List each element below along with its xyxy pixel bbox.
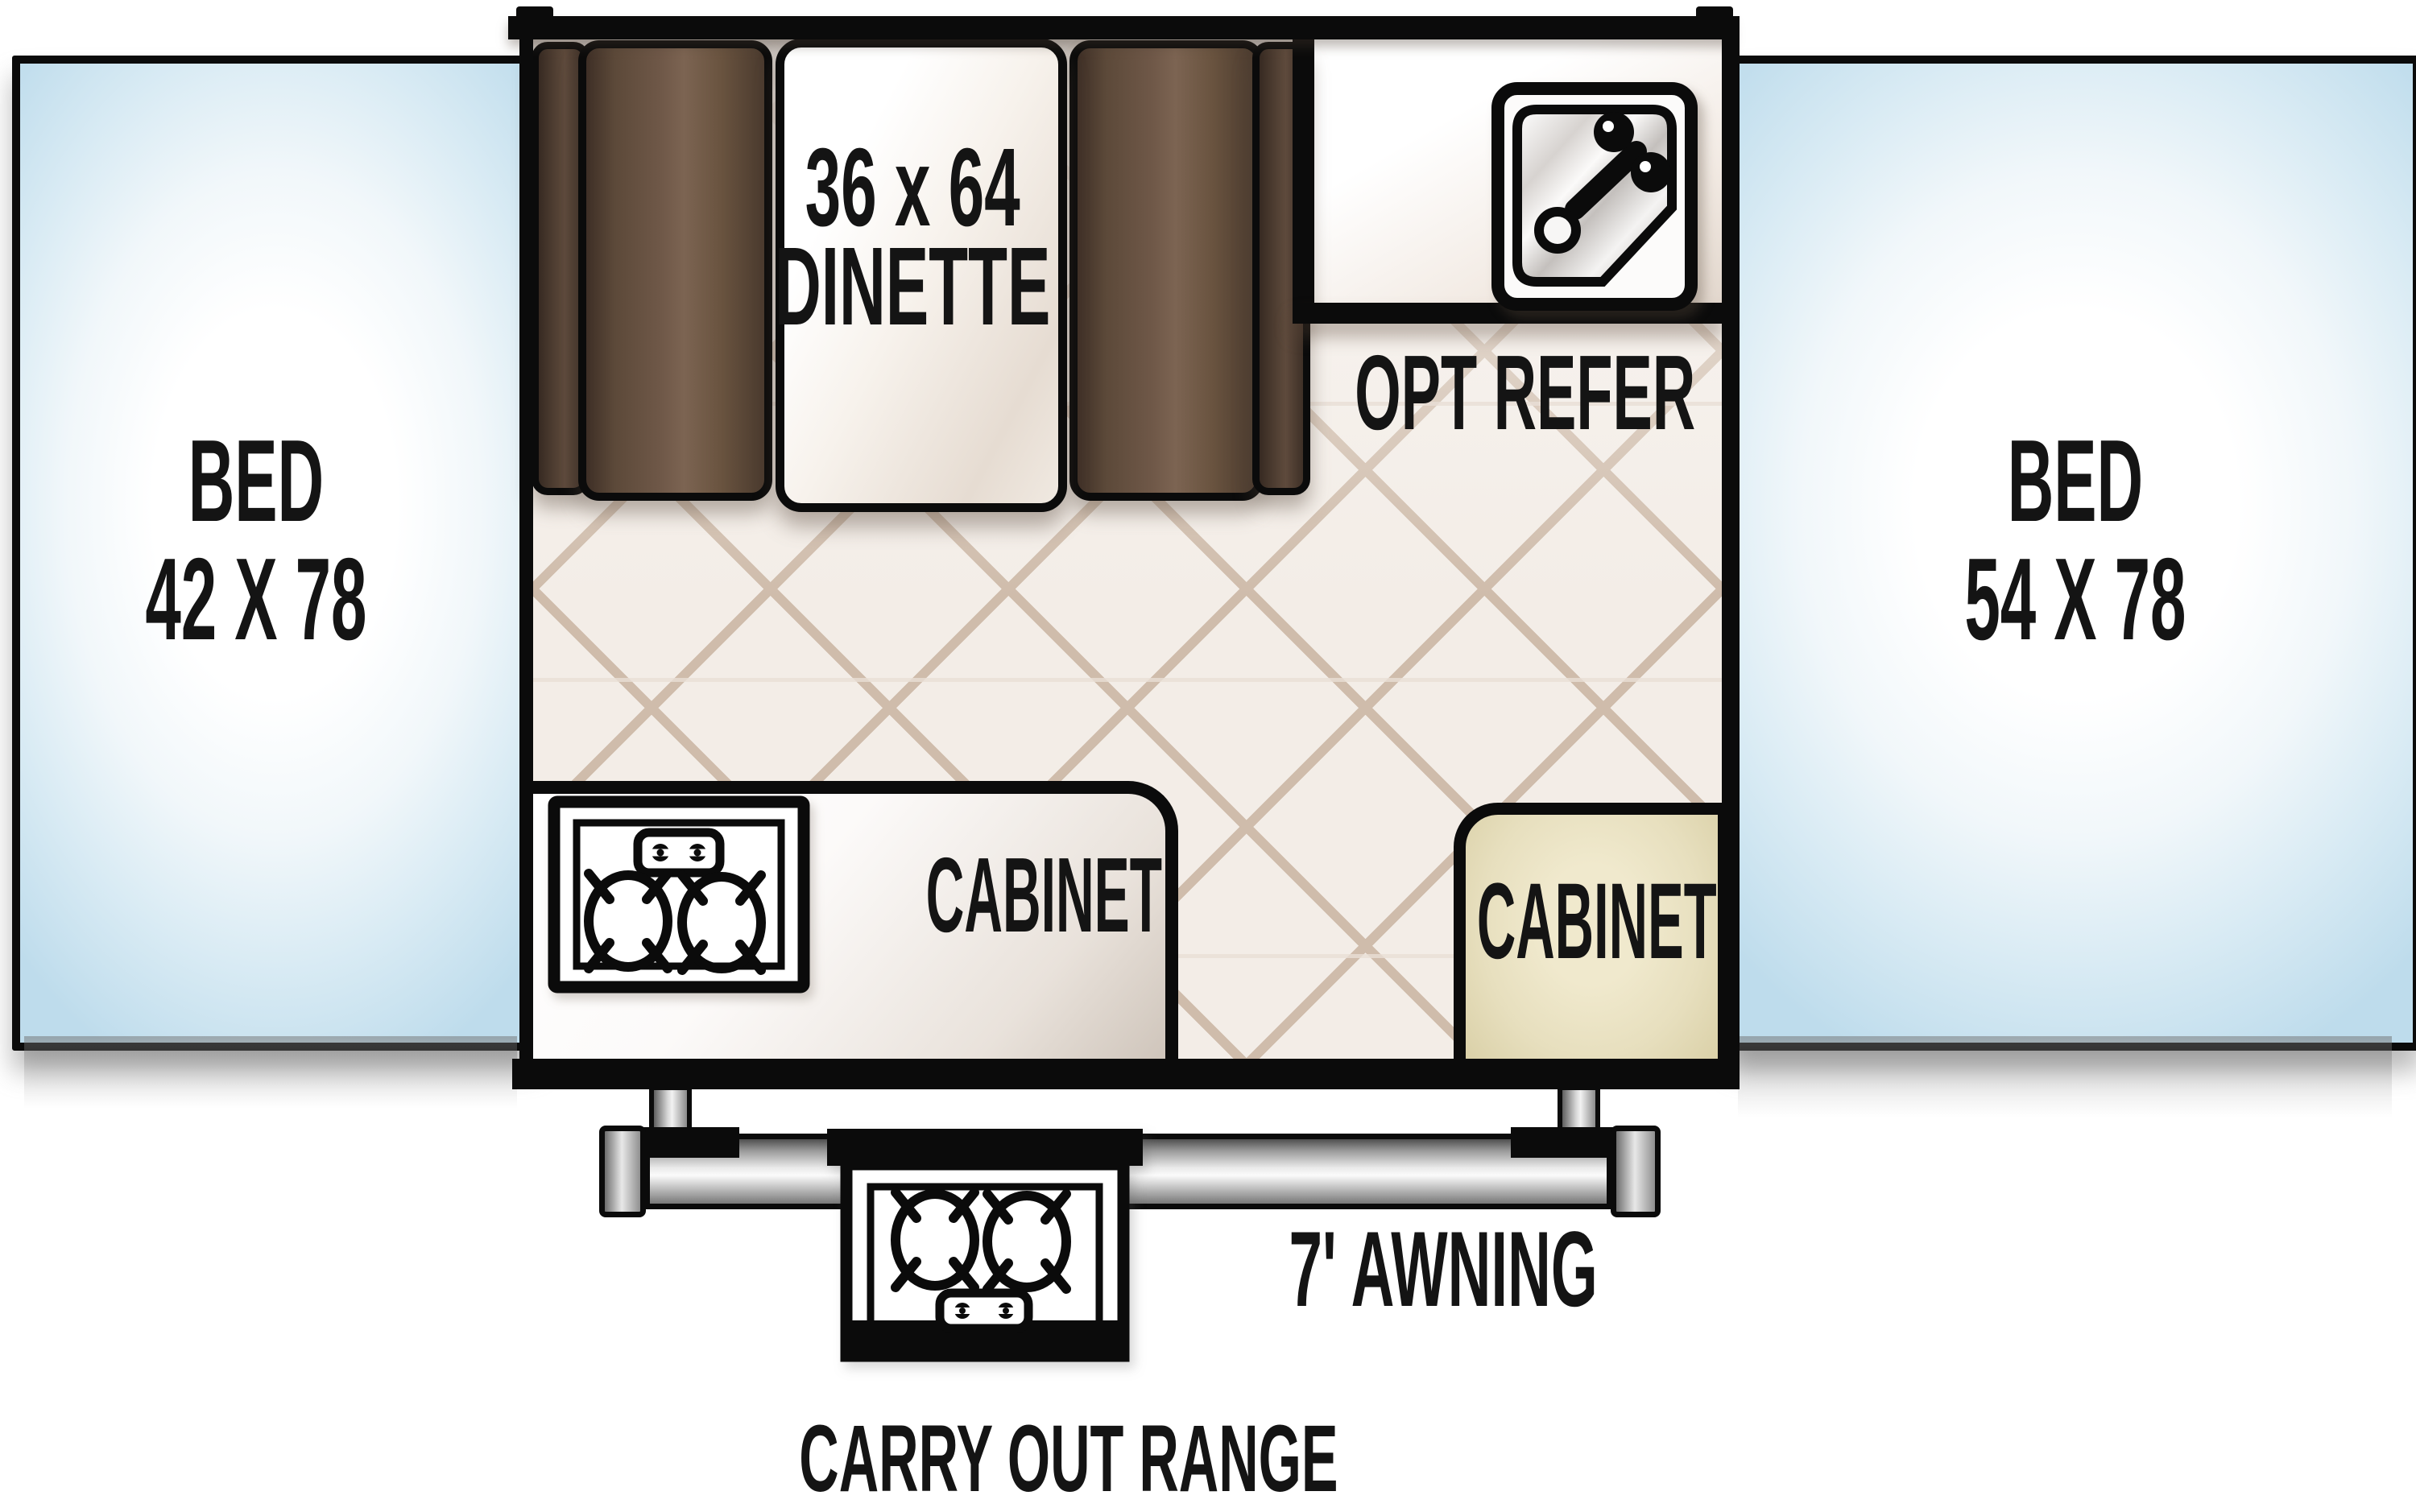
carry-out-range-2-burner-icon bbox=[825, 1127, 1144, 1369]
sink-drain-icon bbox=[1539, 212, 1576, 249]
faucet-knob-icon bbox=[1631, 152, 1671, 192]
bed-right-size: 54 X 78 bbox=[1965, 540, 2186, 659]
bed-right-name: BED bbox=[1965, 422, 2186, 540]
faucet-knob-icon bbox=[1594, 112, 1634, 152]
camper-left-wall bbox=[519, 16, 533, 1089]
awning-end-cap-left bbox=[599, 1126, 646, 1217]
awning-bracket-left bbox=[643, 1127, 739, 1158]
camper-floor-plan: BED 42 X 78 BED 54 X 78 OPT REFER bbox=[0, 0, 2416, 1512]
bed-left-shadow bbox=[24, 1036, 517, 1117]
bed-left-size: 42 X 78 bbox=[146, 540, 367, 659]
camper-top-wall bbox=[508, 16, 1733, 39]
sink-icon bbox=[1491, 82, 1698, 311]
camper-right-wall bbox=[1722, 16, 1740, 1089]
dinette-name: DINETTE bbox=[775, 238, 1050, 337]
roof-latch-right-icon bbox=[1696, 6, 1733, 19]
roof-latch-left-icon bbox=[516, 6, 553, 19]
bed-left-name: BED bbox=[146, 422, 367, 540]
dinette-size: 36 x 64 bbox=[775, 138, 1050, 238]
bed-right-shadow bbox=[1738, 1036, 2392, 1126]
awning-end-cap-right bbox=[1611, 1126, 1661, 1217]
cooktop-2-burner-icon bbox=[548, 795, 810, 994]
awning-bracket-right bbox=[1511, 1127, 1614, 1158]
tile-seam bbox=[533, 678, 1722, 682]
dinette-bench-left-seat bbox=[578, 40, 772, 501]
camper-bottom-wall bbox=[512, 1059, 1740, 1089]
sink-counter-left-wall bbox=[1293, 35, 1314, 324]
dinette-bench-right-seat bbox=[1069, 40, 1264, 501]
